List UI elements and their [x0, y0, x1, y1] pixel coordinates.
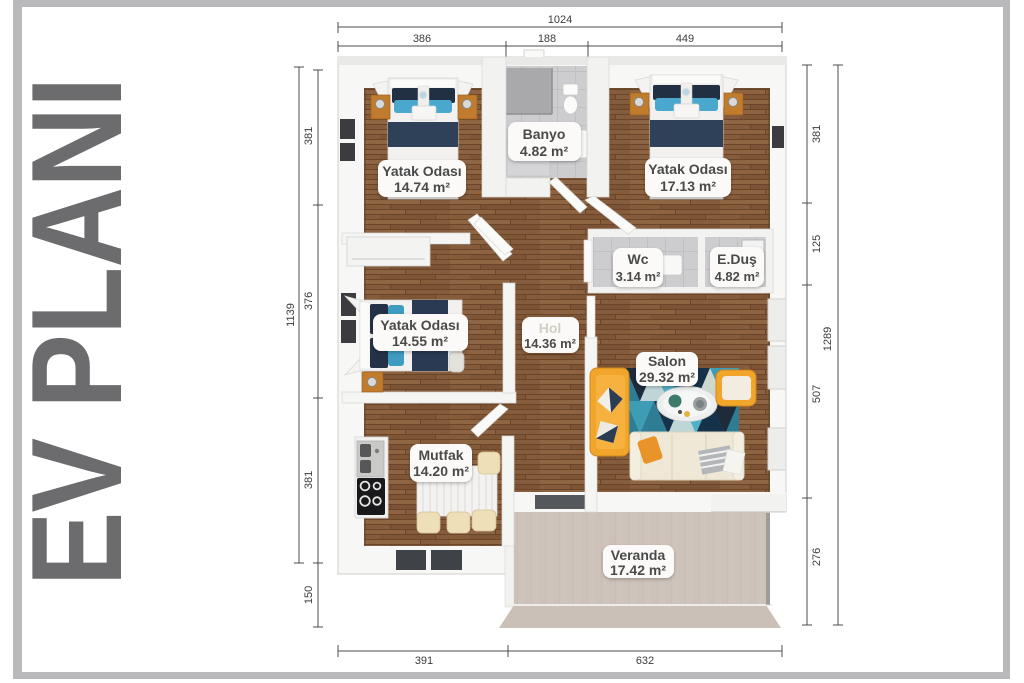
svg-text:Yatak Odası: Yatak Odası: [382, 163, 461, 179]
svg-text:29.32 m²: 29.32 m²: [639, 369, 695, 385]
svg-text:E.Duş: E.Duş: [717, 251, 757, 267]
svg-text:276: 276: [811, 548, 823, 566]
svg-text:381: 381: [811, 125, 823, 143]
svg-text:Salon: Salon: [648, 353, 686, 369]
svg-text:188: 188: [538, 33, 556, 45]
svg-text:1289: 1289: [822, 327, 834, 351]
svg-text:381: 381: [303, 127, 315, 145]
svg-text:EV PLANI: EV PLANI: [5, 78, 149, 587]
svg-text:Veranda: Veranda: [611, 547, 666, 563]
svg-text:150: 150: [303, 586, 315, 604]
svg-text:1024: 1024: [548, 14, 572, 26]
svg-text:632: 632: [636, 655, 654, 667]
svg-text:Mutfak: Mutfak: [418, 447, 463, 463]
svg-text:14.20 m²: 14.20 m²: [413, 463, 469, 479]
svg-text:391: 391: [415, 655, 433, 667]
svg-text:4.82 m²: 4.82 m²: [520, 143, 569, 159]
svg-text:4.82 m²: 4.82 m²: [715, 269, 760, 284]
svg-text:507: 507: [811, 385, 823, 403]
svg-text:Banyo: Banyo: [523, 126, 566, 142]
svg-text:449: 449: [676, 33, 694, 45]
svg-text:1139: 1139: [285, 303, 297, 327]
svg-text:14.36 m²: 14.36 m²: [524, 336, 577, 351]
svg-text:381: 381: [303, 471, 315, 489]
svg-text:17.42 m²: 17.42 m²: [610, 562, 666, 578]
svg-text:14.55 m²: 14.55 m²: [392, 333, 448, 349]
svg-text:125: 125: [811, 235, 823, 253]
svg-text:17.13 m²: 17.13 m²: [660, 178, 716, 194]
svg-text:Wc: Wc: [628, 251, 649, 267]
svg-text:14.74 m²: 14.74 m²: [394, 179, 450, 195]
svg-text:3.14 m²: 3.14 m²: [616, 269, 661, 284]
svg-text:386: 386: [413, 33, 431, 45]
svg-text:Hol: Hol: [539, 320, 562, 336]
svg-text:Yatak Odası: Yatak Odası: [648, 161, 727, 177]
svg-text:376: 376: [303, 292, 315, 310]
svg-text:Yatak Odası: Yatak Odası: [380, 317, 459, 333]
